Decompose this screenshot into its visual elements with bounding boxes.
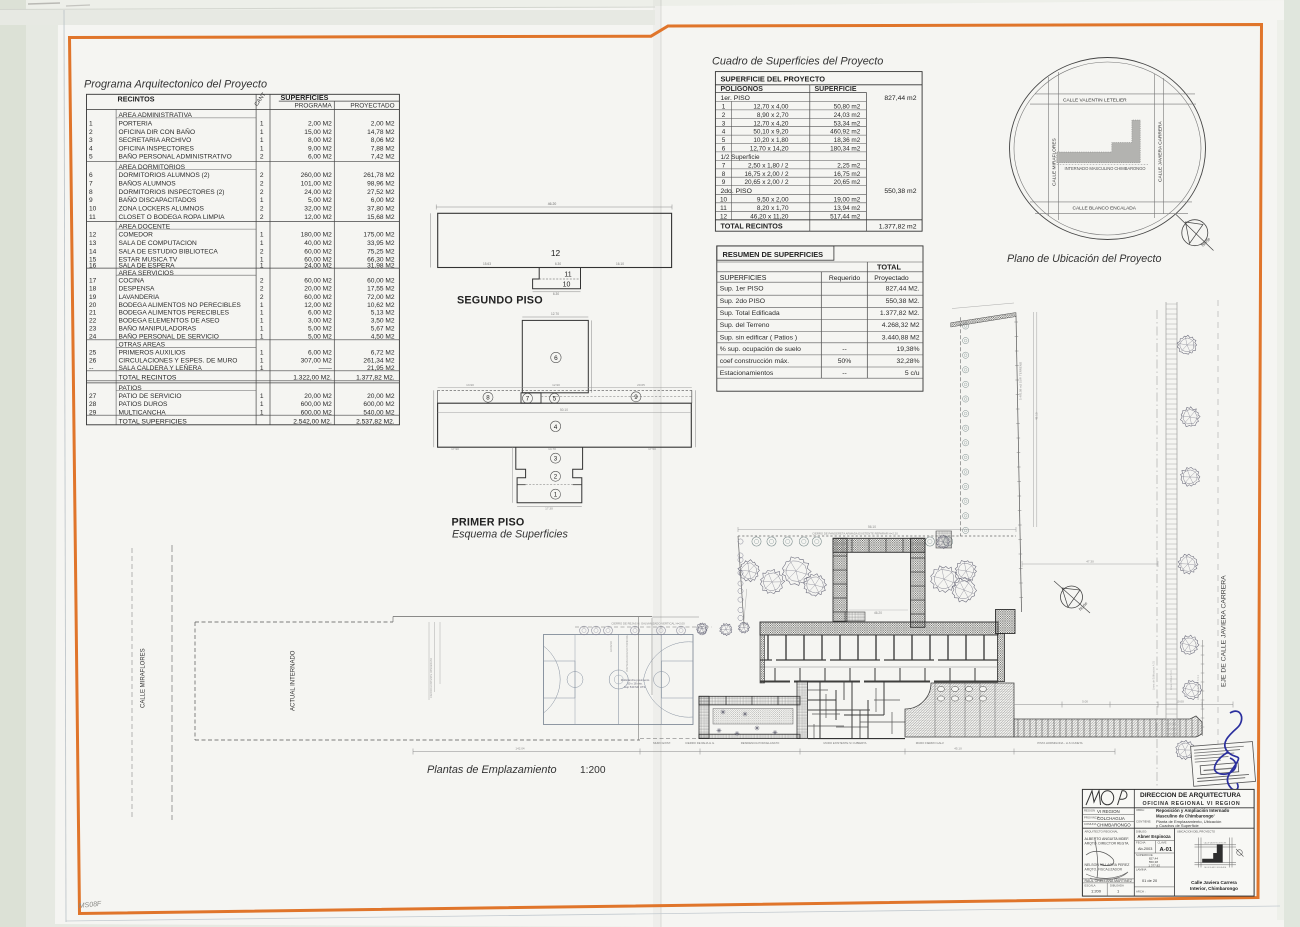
svg-text:6: 6 — [89, 172, 93, 179]
svg-text:1: 1 — [260, 365, 264, 372]
svg-text:1: 1 — [260, 350, 264, 357]
svg-text:PISTA HORMIGONA - H-S CUNETA: PISTA HORMIGONA - H-S CUNETA — [1037, 741, 1082, 745]
svg-text:TOTAL: TOTAL — [877, 263, 901, 272]
svg-text:260,00 M2: 260,00 M2 — [301, 172, 332, 179]
svg-text:9,00 M2: 9,00 M2 — [308, 145, 332, 152]
svg-text:827,44 M2.: 827,44 M2. — [886, 286, 920, 293]
svg-text:550,38 M2.: 550,38 M2. — [886, 298, 920, 305]
svg-text:DIBUJO:: DIBUJO: — [1136, 829, 1147, 833]
svg-text:Cuadro de Superficies del Proy: Cuadro de Superficies del Proyecto — [712, 56, 883, 68]
svg-text:MURO EXIST.: MURO EXIST. — [653, 741, 671, 745]
svg-text:2: 2 — [260, 154, 264, 161]
svg-text:19,00 m2: 19,00 m2 — [834, 196, 861, 203]
svg-text:1.377,82 M2.: 1.377,82 M2. — [880, 310, 920, 317]
svg-text:46,20 x 11,20: 46,20 x 11,20 — [750, 213, 789, 220]
svg-text:12,70 x 4,20: 12,70 x 4,20 — [753, 120, 789, 127]
svg-text:3,00 M2: 3,00 M2 — [308, 317, 332, 324]
svg-text:6.30: 6.30 — [553, 292, 559, 296]
svg-text:6,72 M2: 6,72 M2 — [371, 350, 395, 357]
svg-text:24,00 M2: 24,00 M2 — [304, 263, 332, 270]
svg-text:60,00 M2: 60,00 M2 — [304, 277, 332, 284]
svg-text:2,25 m2: 2,25 m2 — [837, 162, 861, 169]
svg-text:47.30: 47.30 — [1086, 560, 1094, 564]
svg-text:AREA SERVICIOS: AREA SERVICIOS — [119, 270, 175, 277]
svg-text:5,00 M2: 5,00 M2 — [308, 334, 332, 341]
svg-text:DIRECCION DE ARQUITECTURA: DIRECCION DE ARQUITECTURA — [1140, 792, 1241, 799]
svg-text:1.377,82: 1.377,82 — [1148, 863, 1160, 867]
svg-text:33,95 M2: 33,95 M2 — [367, 240, 395, 247]
svg-text:5,13 M2: 5,13 M2 — [371, 310, 395, 317]
svg-text:RESUMEN DE SUPERFICIES: RESUMEN DE SUPERFICIES — [723, 250, 824, 259]
svg-text:1: 1 — [260, 401, 264, 408]
svg-text:45.10: 45.10 — [1035, 412, 1039, 420]
svg-text:DORMITORIOS ALUMNOS (2): DORMITORIOS ALUMNOS (2) — [119, 172, 210, 179]
svg-text:60,00 M2: 60,00 M2 — [304, 294, 332, 301]
svg-text:CALLE BLANCO ENCALADA: CALLE BLANCO ENCALADA — [1204, 866, 1227, 869]
svg-text:LAVANDERIA: LAVANDERIA — [119, 294, 160, 301]
svg-text:6.30: 6.30 — [555, 262, 561, 266]
svg-text:9,50 x 2,00: 9,50 x 2,00 — [757, 196, 789, 203]
svg-text:600,00 M2: 600,00 M2 — [301, 401, 332, 408]
svg-text:2,00 M2: 2,00 M2 — [371, 121, 395, 128]
svg-text:175,00 M2: 175,00 M2 — [363, 232, 394, 239]
svg-text:AREA DOCENTE: AREA DOCENTE — [119, 223, 171, 230]
svg-text:21: 21 — [89, 310, 97, 317]
svg-text:Calle Javiera Carrera: Calle Javiera Carrera — [1191, 880, 1237, 885]
svg-text:Proyectado: Proyectado — [874, 275, 909, 282]
svg-text:SALA DE ESPERA: SALA DE ESPERA — [119, 263, 176, 270]
svg-text:1: 1 — [260, 121, 264, 128]
svg-text:9: 9 — [634, 394, 638, 401]
svg-text:Estacionamientos: Estacionamientos — [720, 370, 774, 377]
svg-text:A-01: A-01 — [1160, 847, 1173, 853]
svg-text:27: 27 — [89, 393, 97, 400]
svg-text:46.20: 46.20 — [874, 611, 882, 615]
svg-text:32,28%: 32,28% — [897, 358, 920, 365]
svg-text:32,00 M2: 32,00 M2 — [304, 206, 332, 213]
svg-text:TOTAL RECINTOS: TOTAL RECINTOS — [119, 375, 177, 382]
svg-text:3.440,88 M2: 3.440,88 M2 — [882, 334, 920, 341]
svg-text:2: 2 — [260, 294, 264, 301]
svg-text:INTERNADO MASCULINO CHIMBARONG: INTERNADO MASCULINO CHIMBARONGO — [1065, 166, 1147, 171]
svg-text:20,00 M2: 20,00 M2 — [304, 393, 332, 400]
svg-text:5.465,08 m2 SUP. TERRENO: 5.465,08 m2 SUP. TERRENO — [1019, 361, 1023, 400]
svg-text:COCINA: COCINA — [119, 277, 145, 284]
svg-text:20: 20 — [89, 302, 97, 309]
svg-text:PORTERIA ACCESO PRINCIPAL: PORTERIA ACCESO PRINCIPAL — [626, 634, 629, 672]
svg-text:45.10: 45.10 — [954, 747, 962, 751]
svg-text:ESCALA: ESCALA — [1085, 883, 1096, 887]
svg-text:DIBUJADA: DIBUJADA — [1110, 883, 1124, 887]
svg-text:20.65: 20.65 — [637, 383, 645, 387]
svg-text:8,20 x 1,70: 8,20 x 1,70 — [757, 205, 789, 212]
svg-text:5: 5 — [89, 154, 93, 161]
svg-text:EJE DE CALLE JAVIERA CARRERA: EJE DE CALLE JAVIERA CARRERA — [1221, 575, 1228, 687]
svg-text:DORMITORIOS INSPECTORES (2): DORMITORIOS INSPECTORES (2) — [119, 189, 225, 196]
svg-text:1:200: 1:200 — [1091, 888, 1102, 893]
svg-text:16: 16 — [89, 263, 97, 270]
svg-text:1: 1 — [260, 197, 264, 204]
svg-text:19: 19 — [89, 294, 97, 301]
svg-text:TOTAL SUPERFICIES: TOTAL SUPERFICIES — [119, 418, 188, 425]
svg-text:50,10 x 9,20: 50,10 x 9,20 — [753, 129, 789, 136]
svg-text:--: -- — [842, 370, 847, 377]
svg-text:16.10: 16.10 — [616, 262, 624, 266]
svg-text:20,00 M2: 20,00 M2 — [304, 286, 332, 293]
svg-text:1.377,82 M2.: 1.377,82 M2. — [356, 375, 395, 382]
svg-text:1.322,00 M2.: 1.322,00 M2. — [293, 375, 332, 382]
svg-text:PRIMEROS AUXILIOS: PRIMEROS AUXILIOS — [119, 350, 187, 357]
svg-text:14.70: 14.70 — [548, 447, 556, 451]
svg-text:29: 29 — [89, 409, 97, 416]
svg-text:75,25 M2: 75,25 M2 — [367, 248, 395, 255]
svg-text:BAÑO PERSONAL ADMINISTRATIVO: BAÑO PERSONAL ADMINISTRATIVO — [119, 152, 232, 161]
svg-text:ARCH :: ARCH : — [1136, 890, 1146, 894]
svg-text:4: 4 — [554, 424, 558, 431]
svg-text:Ab-2003: Ab-2003 — [1138, 847, 1152, 851]
svg-text:15.63: 15.63 — [483, 262, 491, 266]
svg-text:TOTAL RECINTOS: TOTAL RECINTOS — [721, 222, 783, 231]
svg-text:AREA ADMINISTRATIVA: AREA ADMINISTRATIVA — [119, 112, 193, 119]
svg-text:OFICINA DIR CON BAÑO: OFICINA DIR CON BAÑO — [119, 127, 196, 136]
svg-text:22: 22 — [89, 317, 97, 324]
svg-text:SUPERFICIE: SUPERFICIE — [815, 86, 857, 93]
svg-text:--: -- — [89, 365, 93, 372]
svg-text:MULTICANCHA: MULTICANCHA — [119, 409, 167, 416]
svg-text:% sup. ocupación de suelo: % sup. ocupación de suelo — [720, 346, 801, 353]
svg-text:5,00 M2: 5,00 M2 — [308, 326, 332, 333]
svg-text:17.90: 17.90 — [451, 447, 459, 451]
svg-text:2: 2 — [260, 286, 264, 293]
svg-text:7,88 M2: 7,88 M2 — [371, 145, 395, 152]
svg-text:CIERRO EXISTENTE PANDERETA: CIERRO EXISTENTE PANDERETA — [430, 658, 433, 698]
svg-text:6: 6 — [554, 355, 558, 362]
svg-text:RECINTOS: RECINTOS — [118, 94, 155, 103]
svg-text:01 de 20: 01 de 20 — [1142, 878, 1158, 883]
svg-text:15,68 M2: 15,68 M2 — [367, 214, 395, 221]
svg-text:Requerido: Requerido — [829, 275, 861, 282]
svg-text:5 c/u: 5 c/u — [905, 370, 920, 377]
svg-text:50,80 m2: 50,80 m2 — [834, 103, 861, 110]
svg-text:CALLE BLANCO ENCALADA: CALLE BLANCO ENCALADA — [1073, 206, 1137, 212]
svg-text:7: 7 — [89, 181, 93, 188]
svg-text:13: 13 — [89, 240, 97, 247]
svg-text:BODEGA ELEMENTOS DE ASEO: BODEGA ELEMENTOS DE ASEO — [119, 317, 220, 324]
svg-text:4: 4 — [89, 145, 93, 152]
svg-text:ACTUAL INTERNADO: ACTUAL INTERNADO — [291, 650, 297, 711]
svg-text:60,00 M2: 60,00 M2 — [304, 248, 332, 255]
svg-text:PRIMER PISO: PRIMER PISO — [452, 517, 525, 529]
svg-text:180,34 m2: 180,34 m2 — [830, 145, 861, 152]
svg-text:5: 5 — [722, 137, 726, 144]
svg-text:Abner Espinoza: Abner Espinoza — [1137, 834, 1171, 839]
svg-text:5.00: 5.00 — [1082, 700, 1088, 704]
svg-text:Reposición y Ampliación Intern: Reposición y Ampliación Internado — [1156, 808, 1230, 813]
svg-text:1: 1 — [260, 393, 264, 400]
svg-text:COLCHAGUA: COLCHAGUA — [1097, 816, 1125, 821]
svg-text:1: 1 — [260, 129, 264, 136]
svg-text:LAMINA: LAMINA — [1136, 867, 1147, 871]
svg-text:827,44 m2: 827,44 m2 — [884, 95, 916, 102]
svg-text:40,00 M2: 40,00 M2 — [304, 240, 332, 247]
svg-text:ARQTO. DIRECTOR REGTA.: ARQTO. DIRECTOR REGTA. — [1085, 842, 1130, 846]
svg-text:MURO FIERRO GALV.: MURO FIERRO GALV. — [916, 741, 945, 745]
svg-text:24: 24 — [89, 334, 97, 341]
svg-text:37,80 M2: 37,80 M2 — [367, 206, 395, 213]
svg-text:60,00 M2: 60,00 M2 — [367, 277, 395, 284]
svg-text:7: 7 — [526, 396, 530, 403]
svg-text:460,92 m2: 460,92 m2 — [830, 129, 861, 136]
svg-text:1: 1 — [89, 121, 93, 128]
svg-text:coef construcción máx.: coef construcción máx. — [720, 358, 790, 365]
svg-text:8: 8 — [89, 189, 93, 196]
svg-text:4.268,32 M2: 4.268,32 M2 — [882, 322, 920, 329]
svg-text:UBICACION DEL PROYECTO: UBICACION DEL PROYECTO — [1177, 829, 1216, 833]
svg-text:1: 1 — [260, 310, 264, 317]
svg-text:13,94 m2: 13,94 m2 — [834, 205, 861, 212]
svg-text:POLIGONOS: POLIGONOS — [721, 86, 764, 93]
svg-text:18,36 m2: 18,36 m2 — [834, 137, 861, 144]
svg-text:Sup. del Terreno: Sup. del Terreno — [720, 322, 770, 329]
svg-text:BAÑO DISCAPACITADOS: BAÑO DISCAPACITADOS — [119, 195, 197, 204]
svg-text:BAÑO MANIPULADORAS: BAÑO MANIPULADORAS — [119, 324, 197, 333]
svg-text:1: 1 — [260, 334, 264, 341]
svg-text:SEGUNDO PISO: SEGUNDO PISO — [457, 295, 543, 307]
svg-text:CIRCULACIONES Y ESPES. DE MURO: CIRCULACIONES Y ESPES. DE MURO — [119, 358, 238, 365]
svg-text:15,00 M2: 15,00 M2 — [304, 129, 332, 136]
svg-text:SECRETARIA ARCHIVO: SECRETARIA ARCHIVO — [119, 137, 192, 144]
svg-text:13.90: 13.90 — [466, 383, 474, 387]
svg-text:Sup. 2do PISO: Sup. 2do PISO — [720, 298, 765, 305]
svg-text:1:200: 1:200 — [580, 765, 606, 776]
svg-text:8: 8 — [722, 171, 726, 178]
svg-text:RAUL ORELLANA MARTINEZ: RAUL ORELLANA MARTINEZ — [1085, 879, 1133, 883]
svg-text:18: 18 — [89, 286, 97, 293]
svg-text:10,62 M2: 10,62 M2 — [367, 302, 395, 309]
svg-text:COMUNA: COMUNA — [1084, 822, 1097, 826]
svg-text:9: 9 — [722, 179, 726, 186]
svg-text:MURO EXISTENTE S/ CUBIERTA: MURO EXISTENTE S/ CUBIERTA — [824, 741, 867, 745]
svg-text:2: 2 — [260, 277, 264, 284]
svg-text:98,96 M2: 98,96 M2 — [367, 181, 395, 188]
svg-text:CIERRO DE REJAS H. GALVANIZADO: CIERRO DE REJAS H. GALVANIZADO VERTICAL … — [611, 622, 685, 626]
svg-text:10: 10 — [720, 196, 728, 203]
svg-text:56.10: 56.10 — [868, 525, 876, 529]
svg-text:3,50 M2: 3,50 M2 — [371, 317, 395, 324]
svg-text:FECHA: FECHA — [1136, 841, 1146, 845]
svg-text:28: 28 — [89, 401, 97, 408]
svg-text:142.04: 142.04 — [515, 747, 525, 751]
svg-text:27,52 M2: 27,52 M2 — [367, 189, 395, 196]
svg-text:17,55 M2: 17,55 M2 — [367, 286, 395, 293]
svg-text:20,65 x 2,00 / 2: 20,65 x 2,00 / 2 — [744, 179, 789, 186]
svg-text:46.20: 46.20 — [548, 202, 557, 206]
svg-text:12,70 x 4,00: 12,70 x 4,00 — [753, 103, 789, 110]
svg-text:CONTIENE:: CONTIENE: — [1136, 819, 1151, 823]
svg-text:12: 12 — [720, 213, 728, 220]
svg-text:11: 11 — [720, 205, 727, 212]
svg-text:CLAVE: CLAVE — [1158, 841, 1167, 845]
svg-text:2: 2 — [260, 172, 264, 179]
svg-text:CIERRO DE REJA H.G.: CIERRO DE REJA H.G. — [685, 741, 715, 745]
svg-text:DESPENSA: DESPENSA — [119, 286, 156, 293]
svg-text:PROYECTADO: PROYECTADO — [350, 103, 394, 110]
svg-text:ALBERTO ANGUITA MDEF.: ALBERTO ANGUITA MDEF. — [1085, 837, 1130, 841]
svg-text:SUPERFICIES: SUPERFICIES — [281, 93, 329, 102]
svg-text:6,00 M2: 6,00 M2 — [371, 197, 395, 204]
svg-text:BODEGA ALIMENTOS NO PERECIBLES: BODEGA ALIMENTOS NO PERECIBLES — [119, 302, 242, 309]
svg-text:VI REGION: VI REGION — [1097, 809, 1120, 814]
svg-text:19,38%: 19,38% — [897, 346, 920, 353]
svg-text:COMEDOR: COMEDOR — [119, 232, 154, 239]
svg-text:1: 1 — [260, 317, 264, 324]
svg-text:3: 3 — [89, 137, 93, 144]
svg-text:10,20 x 1,80: 10,20 x 1,80 — [753, 137, 789, 144]
svg-text:10.00: 10.00 — [1176, 700, 1184, 704]
svg-text:Programa Arquitectonico del Pr: Programa Arquitectonico del Proyecto — [84, 79, 267, 91]
svg-text:20,00 M2: 20,00 M2 — [367, 393, 395, 400]
svg-text:53,34 m2: 53,34 m2 — [834, 120, 861, 127]
svg-text:3: 3 — [554, 456, 558, 463]
svg-text:17: 17 — [89, 277, 97, 284]
svg-text:7,42 M2: 7,42 M2 — [371, 154, 395, 161]
svg-text:261,78 M2: 261,78 M2 — [363, 172, 394, 179]
svg-text:2.537,82 M2.: 2.537,82 M2. — [356, 418, 395, 425]
svg-text:PATIOS DUROS: PATIOS DUROS — [119, 401, 168, 408]
svg-text:BAÑO PERSONAL DE SERVICIO: BAÑO PERSONAL DE SERVICIO — [119, 332, 219, 341]
svg-text:16,75 m2: 16,75 m2 — [834, 171, 861, 178]
svg-text:12,70 x 14,20: 12,70 x 14,20 — [750, 145, 789, 152]
svg-text:Linea de Solera S 3.1: Linea de Solera S 3.1 — [1196, 674, 1200, 700]
svg-text:550,38 m2: 550,38 m2 — [884, 188, 916, 195]
svg-text:8,90 x 2,70: 8,90 x 2,70 — [757, 112, 789, 119]
svg-text:Plantas de Emplazamiento: Plantas de Emplazamiento — [427, 764, 557, 776]
svg-text:SALA DE COMPUTACION: SALA DE COMPUTACION — [119, 240, 198, 247]
svg-text:5,67 M2: 5,67 M2 — [371, 326, 395, 333]
svg-text:12.70: 12.70 — [551, 312, 559, 316]
svg-text:11: 11 — [564, 272, 571, 279]
svg-text:9: 9 — [89, 197, 93, 204]
svg-text:7: 7 — [722, 162, 726, 169]
svg-text:1er. PISO: 1er. PISO — [721, 95, 750, 102]
svg-text:PATIO DE SERVICIO: PATIO DE SERVICIO — [119, 393, 182, 400]
svg-text:1: 1 — [260, 358, 264, 365]
svg-text:307,00 M2: 307,00 M2 — [301, 358, 332, 365]
svg-text:Sup. 1er PISO: Sup. 1er PISO — [720, 286, 764, 293]
svg-text:AREA DORMITORIOS: AREA DORMITORIOS — [119, 164, 186, 171]
svg-text:Plano de Ubicación del Proyect: Plano de Ubicación del Proyecto — [1007, 253, 1162, 265]
svg-text:16,75 x 2,00 / 2: 16,75 x 2,00 / 2 — [744, 171, 789, 178]
svg-text:26: 26 — [89, 358, 97, 365]
svg-text:1: 1 — [260, 302, 264, 309]
svg-text:24,00 M2: 24,00 M2 — [304, 189, 332, 196]
svg-text:PROGRAMA: PROGRAMA — [295, 103, 333, 110]
svg-text:4,50 M2: 4,50 M2 — [371, 334, 395, 341]
svg-text:23: 23 — [89, 326, 97, 333]
svg-text:101,00 M2: 101,00 M2 — [301, 181, 332, 188]
svg-text:1: 1 — [554, 492, 558, 499]
svg-text:1: 1 — [260, 145, 264, 152]
svg-text:6,00 M2: 6,00 M2 — [308, 350, 332, 357]
svg-text:12,00 M2: 12,00 M2 — [304, 214, 332, 221]
svg-text:Sup. Total Edificada: Sup. Total Edificada — [720, 310, 780, 317]
svg-text:2: 2 — [89, 129, 93, 136]
svg-text:2: 2 — [260, 214, 264, 221]
svg-text:Linea de Edificacion A 31: Linea de Edificacion A 31 — [1152, 660, 1156, 690]
svg-text:180,00 M2: 180,00 M2 — [301, 232, 332, 239]
svg-text:Esquema de Superficies: Esquema de Superficies — [452, 529, 569, 541]
svg-text:REGION: REGION — [1084, 809, 1095, 813]
svg-text:8: 8 — [486, 395, 490, 402]
svg-text:CALLE VALENTIN LETELIER: CALLE VALENTIN LETELIER — [1204, 842, 1227, 845]
svg-text:517,44 m2: 517,44 m2 — [830, 213, 861, 220]
svg-text:50%: 50% — [838, 358, 852, 365]
svg-text:2: 2 — [554, 474, 558, 481]
svg-text:5: 5 — [553, 396, 557, 403]
svg-text:3: 3 — [722, 120, 726, 127]
svg-text:600,00 M2: 600,00 M2 — [363, 401, 394, 408]
svg-text:ZONA LOCKERS ALUMNOS: ZONA LOCKERS ALUMNOS — [119, 206, 205, 213]
svg-text:14: 14 — [89, 248, 97, 255]
svg-text:OBRA:: OBRA: — [1136, 808, 1145, 812]
svg-text:10: 10 — [563, 281, 571, 288]
svg-text:1: 1 — [260, 137, 264, 144]
svg-text:2do. PISO: 2do. PISO — [721, 188, 752, 195]
svg-text:6,00 M2: 6,00 M2 — [308, 154, 332, 161]
svg-text:10: 10 — [89, 206, 97, 213]
svg-text:2.542,00 M2.: 2.542,00 M2. — [293, 418, 332, 425]
svg-text:540,00 M2: 540,00 M2 — [363, 409, 394, 416]
svg-text:RESIDENCIA PORCELANATO: RESIDENCIA PORCELANATO — [741, 741, 780, 745]
svg-text:11: 11 — [89, 214, 96, 221]
svg-text:CIERRO DE PANDERETA ARMADA EXI: CIERRO DE PANDERETA ARMADA EXISTENTE REP… — [812, 531, 898, 535]
svg-text:5,00 M2: 5,00 M2 — [308, 197, 332, 204]
svg-text:OTRAS AREAS: OTRAS AREAS — [119, 342, 166, 349]
svg-text:2: 2 — [722, 112, 726, 119]
svg-text:6,00 M2: 6,00 M2 — [308, 310, 332, 317]
svg-text:ARQTO. FISCALIZADOR: ARQTO. FISCALIZADOR — [1085, 867, 1123, 871]
svg-text:--: -- — [842, 346, 847, 353]
svg-text:2: 2 — [260, 181, 264, 188]
svg-text:12: 12 — [89, 232, 97, 239]
svg-text:SUPERFICIE DEL PROYECTO: SUPERFICIE DEL PROYECTO — [721, 75, 826, 84]
svg-text:ACCESO: ACCESO — [609, 641, 613, 652]
svg-text:PATIOS: PATIOS — [119, 385, 143, 392]
svg-text:Linea Oficial S.O.: Linea Oficial S.O. — [1169, 670, 1173, 690]
svg-text:1: 1 — [722, 103, 726, 110]
svg-text:y Cuadros de Superficie: y Cuadros de Superficie — [1156, 823, 1199, 828]
svg-text:1: 1 — [260, 263, 264, 270]
svg-text:20,65 m2: 20,65 m2 — [834, 179, 861, 186]
svg-text:SALA DE ESTUDIO BIBLIOTECA: SALA DE ESTUDIO BIBLIOTECA — [119, 248, 219, 255]
svg-text:Sup. sin edificar ( Patios ): Sup. sin edificar ( Patios ) — [720, 334, 797, 341]
svg-text:NELSON VILLAGRA PEREZ: NELSON VILLAGRA PEREZ — [1085, 863, 1131, 867]
svg-text:4: 4 — [722, 129, 726, 136]
svg-text:1: 1 — [260, 326, 264, 333]
svg-text:2,00 M2: 2,00 M2 — [308, 121, 332, 128]
svg-text:BAÑOS ALUMNOS: BAÑOS ALUMNOS — [119, 179, 177, 188]
svg-text:1: 1 — [260, 240, 264, 247]
svg-text:——: —— — [319, 365, 333, 372]
svg-text:OFICINA REGIONAL VI REGION: OFICINA REGIONAL VI REGION — [1143, 801, 1241, 807]
svg-text:2: 2 — [260, 248, 264, 255]
svg-text:2: 2 — [260, 206, 264, 213]
svg-text:261,34 M2: 261,34 M2 — [363, 358, 394, 365]
svg-text:8,00 M2: 8,00 M2 — [308, 137, 332, 144]
svg-text:CALLE MIRAFLORES: CALLE MIRAFLORES — [141, 648, 147, 708]
svg-text:1.377,82 m2: 1.377,82 m2 — [879, 223, 917, 230]
svg-text:1: 1 — [260, 232, 264, 239]
